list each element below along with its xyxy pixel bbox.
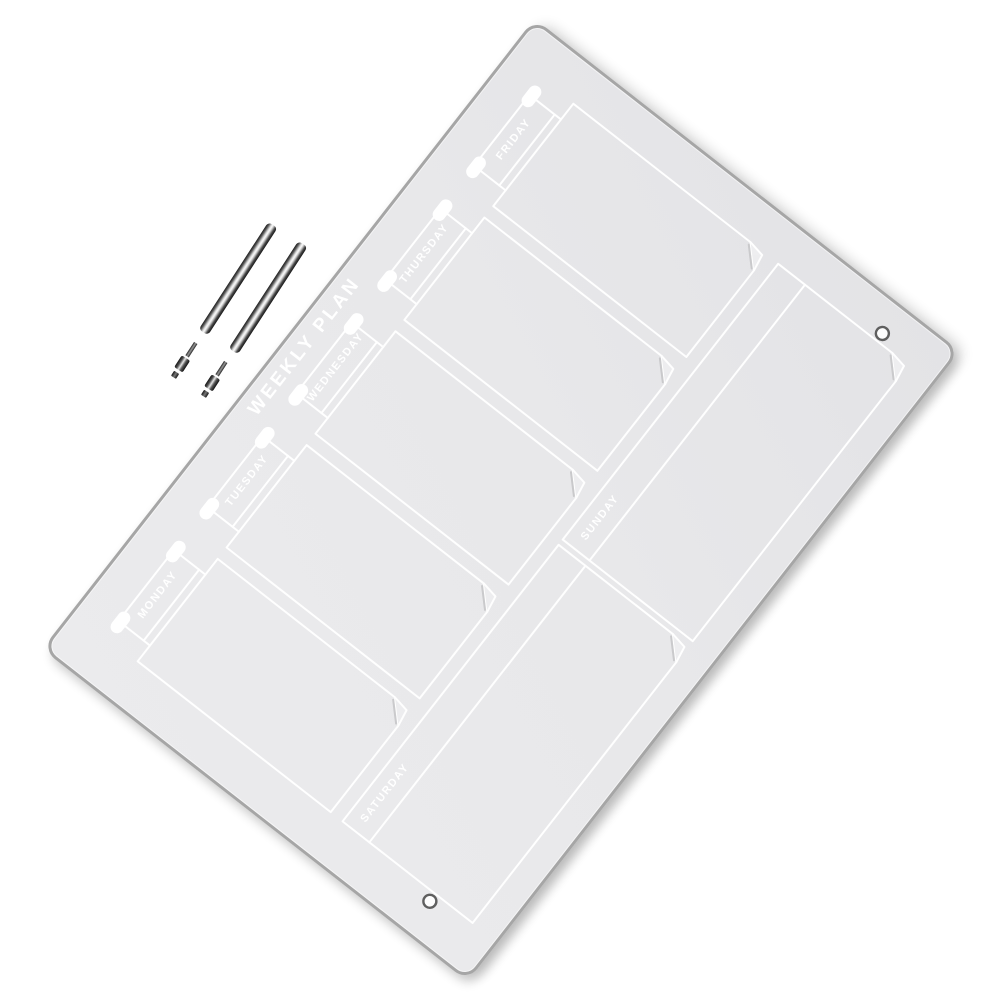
day-column-monday bbox=[106, 534, 411, 812]
pen-tip-rod bbox=[185, 342, 197, 358]
pen-nib bbox=[171, 371, 179, 379]
pen-nib bbox=[201, 390, 209, 398]
pen-ferrule bbox=[174, 355, 190, 372]
product-photo: WEEKLY PLAN MONDAY TUESDAY WEDNESDAY THU… bbox=[0, 0, 1002, 1002]
day-column-wednesday bbox=[284, 307, 589, 585]
day-column-tuesday bbox=[195, 420, 500, 698]
weekend-cell-saturday bbox=[343, 545, 689, 923]
weekly-planner-board: WEEKLY PLAN MONDAY TUESDAY WEDNESDAY THU… bbox=[42, 19, 960, 982]
pen-ferrule bbox=[204, 374, 220, 391]
pen-tip-rod bbox=[215, 361, 227, 377]
pen-barrel bbox=[198, 222, 277, 335]
day-column-thursday bbox=[373, 193, 678, 471]
header-tab-pills bbox=[108, 83, 544, 636]
day-column-friday bbox=[462, 79, 767, 357]
